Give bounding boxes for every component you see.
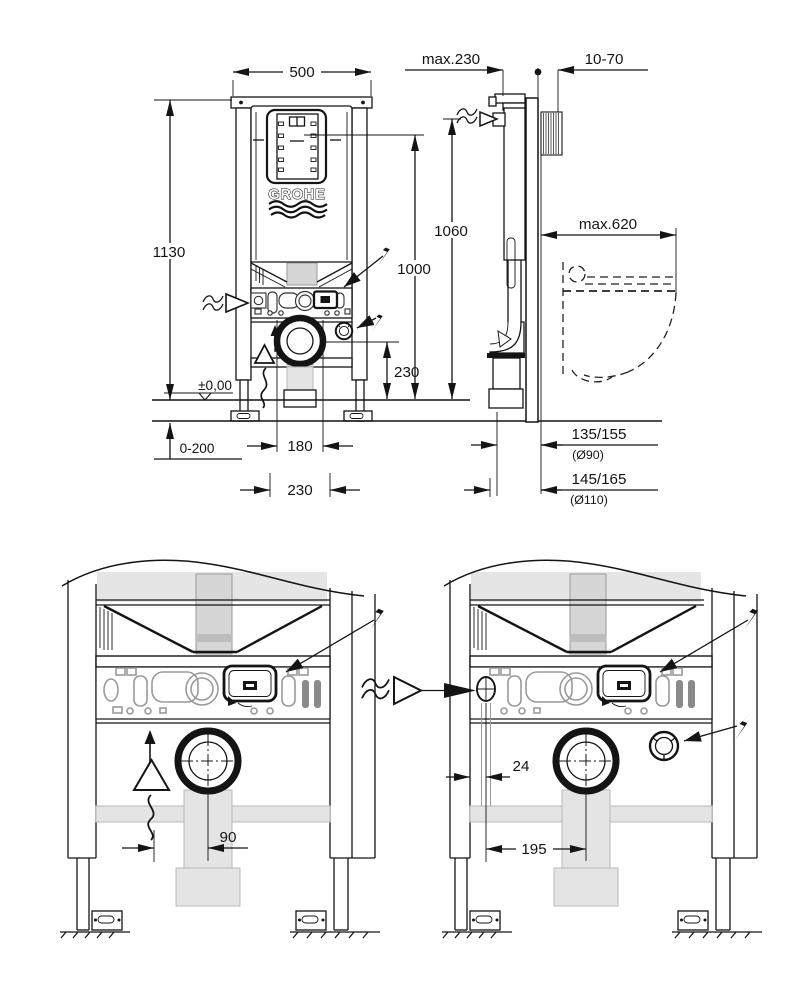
dim-bowl-depth-label: max.620 bbox=[579, 216, 637, 233]
toilet-outline bbox=[563, 262, 676, 382]
dim-outlet-90-label: 135/155 bbox=[572, 426, 627, 443]
foot-plate bbox=[470, 911, 708, 930]
vent-arrow-icon bbox=[134, 730, 169, 840]
foot-plate bbox=[92, 911, 326, 930]
drain-pipe-front bbox=[287, 367, 313, 390]
dim-height-label: 1130 bbox=[153, 244, 186, 261]
floor-level-label: ±0,00 bbox=[198, 378, 232, 393]
electrical-connector-box bbox=[314, 292, 337, 309]
drain-socket-front bbox=[277, 318, 323, 365]
dim-wall-clearance-label: 10-70 bbox=[585, 51, 624, 68]
dim-fixing-outer-label: 230 bbox=[287, 482, 312, 499]
flush-bend-side bbox=[487, 260, 525, 408]
dim-fixing-inner-label: 180 bbox=[287, 438, 312, 455]
electrical-round-port bbox=[650, 732, 678, 760]
cistern-front: GROHE bbox=[251, 106, 352, 310]
dim-outlet-offset-label: 195 bbox=[521, 841, 546, 858]
dim-outlet-110-label: 145/165 bbox=[572, 471, 627, 488]
ground-hatch bbox=[442, 932, 762, 938]
detail-view-left: 90 bbox=[60, 560, 393, 938]
detail-view-right: 24 195 bbox=[362, 560, 767, 938]
drawing-page: GROHE bbox=[0, 0, 792, 1000]
outlet-110-diameter-label: (Ø110) bbox=[570, 493, 608, 507]
water-supply-icon bbox=[362, 677, 476, 704]
water-supply-icon bbox=[457, 109, 497, 126]
dim-width-label: 500 bbox=[289, 64, 314, 81]
foot-plate bbox=[231, 411, 372, 421]
dim-drain-height-label: 230 bbox=[394, 364, 419, 381]
ground-hatch bbox=[60, 932, 380, 938]
connection-panel-front bbox=[251, 288, 352, 452]
dim-supply-height-label: 1060 bbox=[434, 223, 468, 240]
floor-lines bbox=[152, 400, 662, 421]
dim-frame-depth-label: max.230 bbox=[422, 51, 480, 68]
wall-covering-hatch bbox=[541, 112, 562, 155]
dim-outlet-offset-label: 90 bbox=[220, 829, 237, 846]
electrical-connector-box bbox=[598, 666, 650, 707]
level-marker-icon bbox=[164, 393, 233, 400]
electrical-round-port bbox=[336, 323, 352, 339]
electrical-connector-box bbox=[224, 666, 276, 707]
dim-plate-height-label: 1000 bbox=[397, 261, 431, 278]
connection-panel bbox=[96, 666, 330, 723]
outlet-90-diameter-label: (Ø90) bbox=[572, 448, 604, 462]
dim-leg-range-label: 0-200 bbox=[180, 441, 215, 456]
technical-drawing: GROHE bbox=[0, 0, 792, 1000]
dim-supply-offset-label: 24 bbox=[513, 758, 530, 775]
